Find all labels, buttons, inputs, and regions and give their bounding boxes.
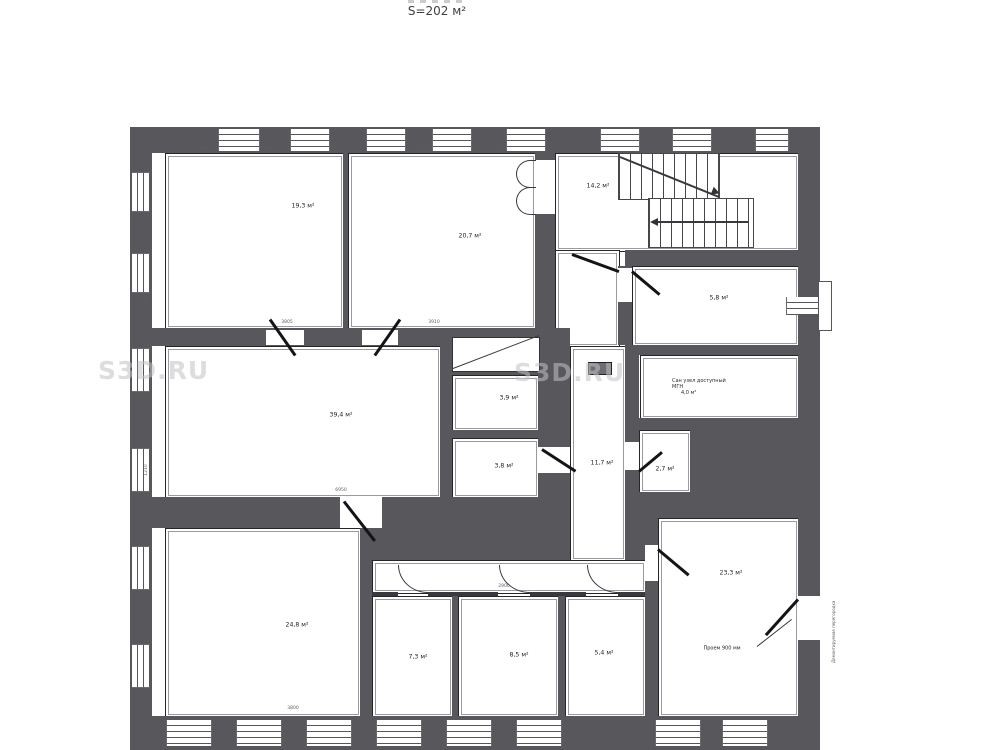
room-area-label: 14,2 м² [587, 183, 610, 190]
partition [565, 592, 586, 596]
window-opening [290, 129, 330, 151]
window-opening [236, 720, 282, 746]
room-bottom-left [165, 528, 362, 718]
outer-wall-right [798, 127, 820, 750]
room-area-label: 20,7 м² [459, 233, 482, 240]
dim-label: 3800 [287, 706, 298, 711]
watermark: S3D.RU [514, 358, 625, 387]
dim-label: 1500 [144, 294, 149, 305]
dim-label: 910 [331, 146, 340, 151]
room-top-mid [348, 153, 537, 330]
stair-arrow-icon [650, 218, 658, 226]
dim-label: 1210 [144, 464, 149, 475]
stair-direction-line [658, 221, 748, 223]
dim-label: 1500 [418, 146, 429, 151]
dim-label: 6950 [335, 488, 346, 493]
room-area-label: 5,8 м² [710, 295, 729, 302]
floor-plan: S=202 м² [0, 0, 1000, 750]
window-opening [132, 172, 150, 212]
window-opening [722, 720, 768, 746]
room-top-left [165, 153, 345, 330]
room-5-4 [565, 596, 647, 718]
partition [530, 592, 565, 596]
window-opening [655, 720, 701, 746]
wall-segment [632, 418, 690, 430]
room-area-label-multiline: Сан узел доступный МГН 4,0 м² [672, 378, 726, 396]
dim-label: 950 [498, 146, 507, 151]
wall-segment [452, 592, 458, 716]
wall-segment [558, 592, 565, 716]
total-area-title: S=202 м² [408, 4, 466, 18]
partition [428, 592, 458, 596]
partition [458, 592, 498, 596]
partition [372, 592, 398, 596]
san-uzel-line3: 4,0 м² [672, 390, 726, 396]
staircase-lower-flight [648, 198, 754, 248]
side-note: Демонтируемая перегородка [832, 601, 836, 663]
window-opening [366, 129, 406, 151]
dim-label: 1490 [260, 146, 271, 151]
window-opening [506, 129, 546, 151]
door-opening [535, 160, 555, 214]
cropped-text-remnant [408, 0, 466, 3]
door-swing-arc [516, 187, 536, 215]
room-area-label: 2,7 м² [656, 466, 675, 473]
wall-segment [625, 250, 820, 266]
window-opening [376, 720, 422, 746]
window-opening [132, 644, 150, 688]
wall-segment [443, 430, 538, 438]
window-opening [132, 546, 150, 590]
watermark: S3D.RU [98, 356, 209, 385]
door-opening [618, 268, 632, 302]
window-opening [600, 129, 640, 151]
window-opening [306, 720, 352, 746]
room-area-label: 23,3 м² [720, 570, 743, 577]
window-opening [446, 720, 492, 746]
dim-label: 3910 [428, 320, 439, 325]
door-swing-arc [516, 160, 536, 188]
room-area-label: 39,4 м² [330, 412, 353, 419]
room-area-label: 3,8 м² [495, 463, 514, 470]
window-opening [755, 129, 789, 151]
window-opening [166, 720, 212, 746]
window-opening [132, 253, 150, 293]
doorway-annotation: Проем 900 мм [703, 645, 740, 651]
dim-label: 3805 [281, 320, 292, 325]
room-area-label: 8,5 м² [510, 652, 529, 659]
door-opening [625, 442, 639, 470]
wall-segment [360, 528, 372, 716]
room-area-label: 11,7 м² [591, 460, 614, 467]
room-area-label: 5,4 м² [595, 650, 614, 657]
window-opening [218, 129, 260, 151]
window-opening [432, 129, 472, 151]
room-area-label: 3,9 м² [500, 395, 519, 402]
wall-segment [372, 528, 570, 560]
window-opening [672, 129, 712, 151]
wall-segment [625, 518, 645, 560]
wall-segment [440, 337, 452, 497]
room-5-8 [632, 266, 800, 347]
door-opening [798, 596, 820, 640]
dim-label: 900 [200, 146, 209, 151]
room-area-label: 7,3 м² [409, 654, 428, 661]
partition [618, 592, 645, 596]
wall-segment [343, 153, 348, 328]
wall-segment [632, 345, 798, 355]
room-area-label: 19,3 м² [292, 203, 315, 210]
wall-segment [690, 418, 798, 518]
dim-label: 2900 [498, 584, 509, 589]
exterior-niche [818, 281, 832, 331]
wall-segment [625, 492, 702, 518]
window-opening [516, 720, 562, 746]
room-area-label: 24,8 м² [286, 622, 309, 629]
